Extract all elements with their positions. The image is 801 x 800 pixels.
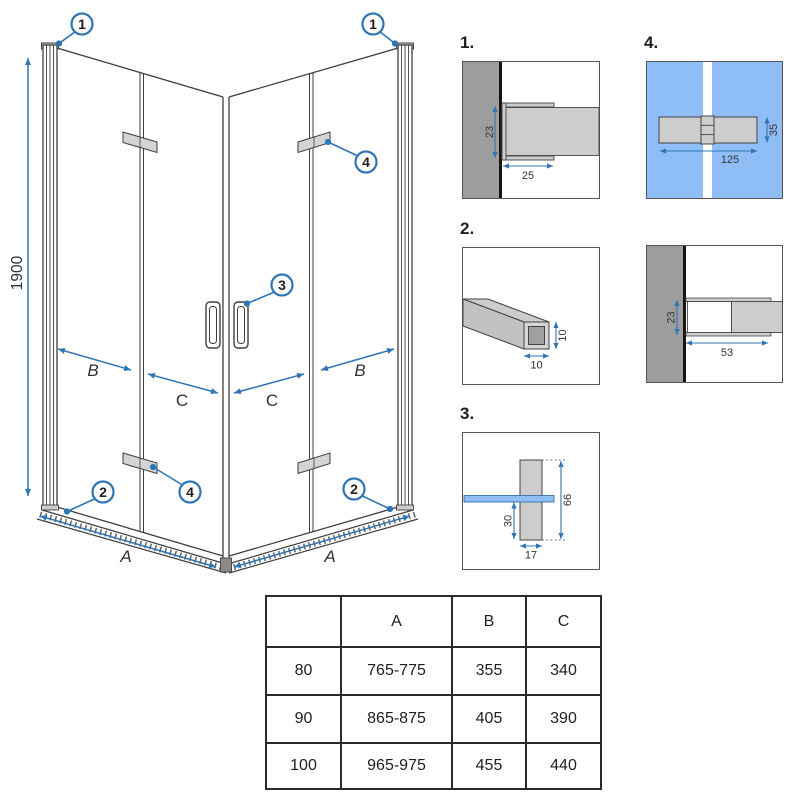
detail-1-dim-25: 25: [522, 170, 534, 182]
dim-c-right-label: C: [266, 391, 278, 410]
callout-hinge-lower: 4: [150, 464, 201, 503]
svg-text:1: 1: [78, 16, 86, 32]
callout-hinge-upper: 4: [325, 139, 377, 173]
detail-5-dim-53: 53: [721, 347, 733, 359]
detail-view-4-hinge: 35 125: [646, 61, 783, 199]
dimension-height-label: 1900: [9, 255, 26, 290]
cell-b: 455: [452, 743, 526, 789]
detail-view-1-wall-profile: 23 25: [462, 61, 600, 199]
technical-diagram-page: 1900 B C C B A A 1: [0, 0, 801, 800]
dimension-doors: [58, 349, 394, 393]
cell-a: 765-775: [341, 647, 452, 695]
detail-3-dim-30: 30: [503, 515, 515, 527]
dim-b-right-label: B: [354, 361, 365, 380]
table-header-row: A B C: [266, 596, 601, 647]
cell-b: 405: [452, 695, 526, 743]
callout-wall-profile-right: 1: [363, 14, 399, 47]
table-header-size: [266, 596, 341, 647]
dim-c-left-label: C: [176, 391, 188, 410]
callouts: 1 1 4 3: [56, 14, 398, 515]
table-row: 90 865-875 405 390: [266, 695, 601, 743]
table-row: 80 765-775 355 340: [266, 647, 601, 695]
glass-panel-section: [732, 302, 783, 333]
callout-bottom-rail-right: 2: [344, 479, 394, 513]
cell-b: 355: [452, 647, 526, 695]
detail-2-dim-10h: 10: [530, 360, 542, 372]
svg-text:1: 1: [369, 16, 377, 32]
cell-c: 340: [526, 647, 601, 695]
svg-text:4: 4: [362, 154, 370, 170]
svg-text:2: 2: [350, 481, 358, 497]
detail-1-label: 1.: [460, 34, 474, 51]
callout-wall-profile-left: 1: [56, 14, 93, 47]
svg-text:2: 2: [99, 484, 107, 500]
profile-channel: [688, 302, 732, 333]
door-handles: [206, 302, 248, 348]
svg-text:3: 3: [278, 277, 286, 293]
dimension-height: 1900: [9, 58, 28, 496]
detail-4-dim-35: 35: [768, 124, 780, 136]
table-row: 100 965-975 455 440: [266, 743, 601, 789]
cell-size: 100: [266, 743, 341, 789]
detail-1-dim-23: 23: [484, 126, 496, 138]
table-header-b: B: [452, 596, 526, 647]
shower-enclosure-drawing: 1900 B C C B A A 1: [0, 0, 440, 600]
glass-panel-section: [464, 496, 554, 503]
callout-bottom-rail-left: 2: [64, 482, 114, 515]
hinges: [123, 132, 330, 474]
detail-view-wall-adjustment: 23 53: [646, 245, 783, 383]
detail-view-3-handle: 66 30 17: [462, 432, 600, 570]
callout-handle: 3: [244, 275, 293, 307]
table-header-a: A: [341, 596, 452, 647]
dim-a-left-label: A: [119, 547, 131, 566]
bottom-tray: [37, 510, 418, 573]
dim-a-right-label: A: [323, 547, 335, 566]
detail-4-dim-125: 125: [721, 154, 739, 166]
cell-c: 390: [526, 695, 601, 743]
cell-c: 440: [526, 743, 601, 789]
detail-4-label: 4.: [644, 34, 658, 51]
cell-size: 80: [266, 647, 341, 695]
detail-5-dim-23: 23: [666, 311, 678, 323]
cell-a: 865-875: [341, 695, 452, 743]
glass-panel-section: [506, 108, 599, 156]
detail-view-2-square-tube: 10 10: [462, 247, 600, 385]
detail-3-label: 3.: [460, 405, 474, 422]
detail-2-label: 2.: [460, 220, 474, 237]
right-wall-profile: [397, 43, 414, 510]
cell-a: 965-975: [341, 743, 452, 789]
size-table: A B C 80 765-775 355 340 90 865-875 405 …: [265, 595, 602, 790]
detail-3-dim-17: 17: [525, 550, 537, 562]
left-wall-profile: [42, 43, 59, 510]
table-header-c: C: [526, 596, 601, 647]
dim-b-left-label: B: [87, 361, 98, 380]
svg-text:4: 4: [186, 484, 194, 500]
cell-size: 90: [266, 695, 341, 743]
detail-3-dim-66: 66: [562, 494, 574, 506]
detail-2-dim-10v: 10: [557, 329, 569, 341]
